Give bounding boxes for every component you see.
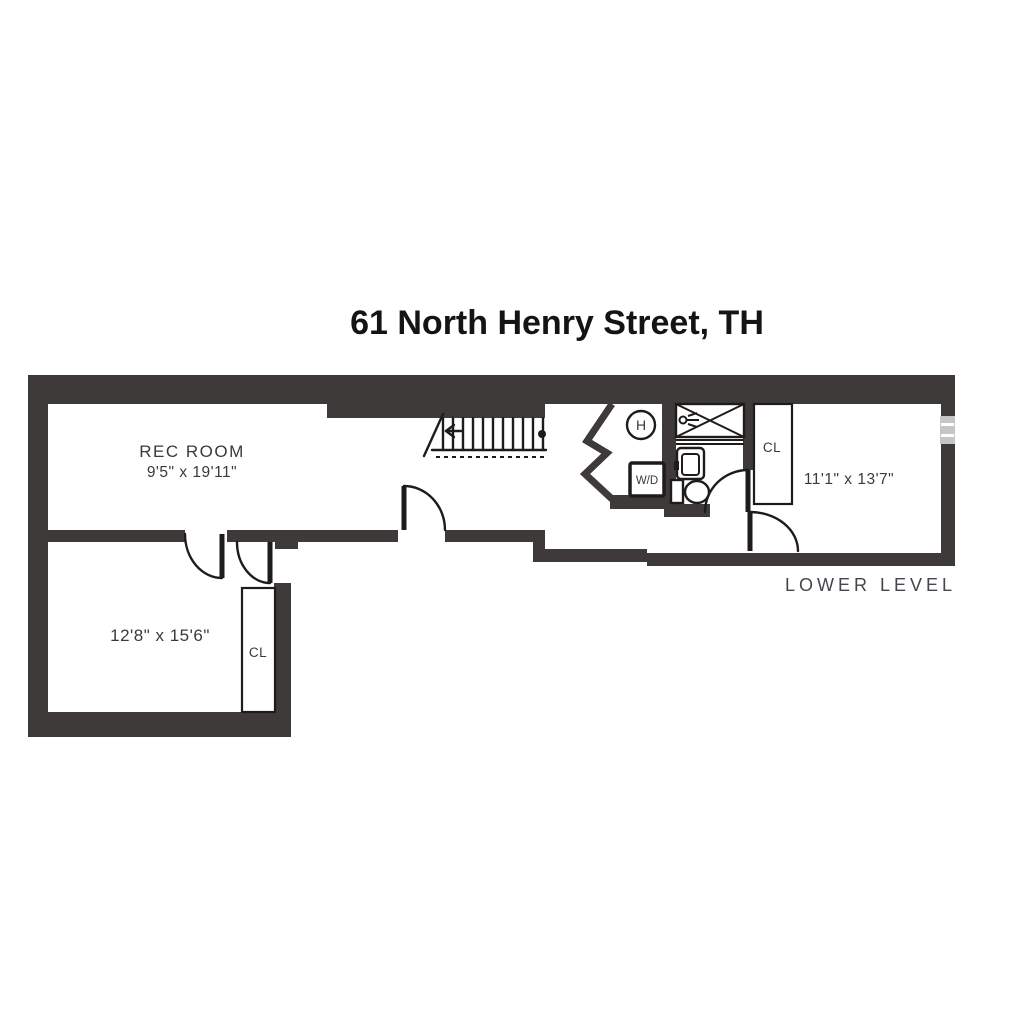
right-room-dimensions: 11'1" x 13'7" (804, 471, 894, 488)
heater-label: H (636, 417, 646, 433)
page-title: 61 North Henry Street, TH (350, 304, 764, 342)
sink-icon (674, 448, 704, 479)
closet-hall: CL (754, 404, 792, 504)
floor-level-label: LOWER LEVEL (785, 575, 956, 595)
door-lower-room-left (185, 534, 222, 578)
washer-dryer-icon: W/D (630, 463, 664, 496)
heater-icon: H (627, 411, 655, 439)
floorplan-page: 61 North Henry Street, TH (0, 0, 1024, 1024)
exterior-and-interior-walls (28, 375, 955, 737)
floorplan-drawing: 61 North Henry Street, TH (0, 0, 1024, 1024)
washer-dryer-label: W/D (636, 475, 658, 487)
toilet-icon (671, 480, 709, 503)
shower-icon (676, 404, 744, 444)
stair-direction-arrow-icon (446, 425, 461, 437)
closet-lower-room: CL (242, 588, 275, 712)
door-right-room (750, 512, 798, 551)
lower-left-room-dimensions: 12'8" x 15'6" (110, 626, 210, 645)
door-lower-room-right (237, 542, 270, 583)
window-icon (940, 416, 955, 444)
door-bathroom (705, 470, 748, 512)
closet-hall-label: CL (763, 440, 781, 455)
closet-lower-label: CL (249, 645, 267, 660)
rec-room-dimensions: 9'5" x 19'11" (147, 464, 237, 481)
rec-room-name: REC ROOM (139, 442, 245, 461)
staircase-icon (424, 414, 546, 457)
wall-break-symbol (585, 404, 612, 499)
door-hallway-center (404, 486, 445, 530)
